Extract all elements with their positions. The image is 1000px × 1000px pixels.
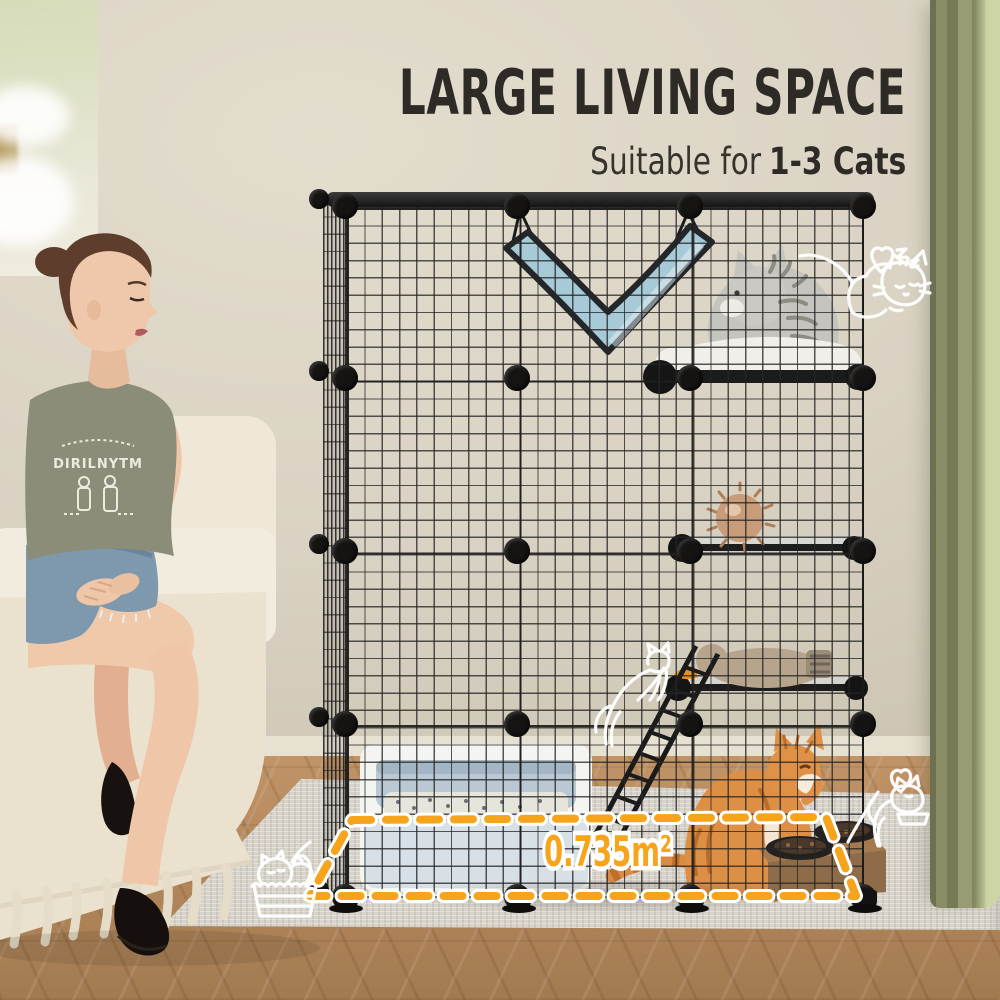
jumping-cat-doodle	[596, 643, 670, 746]
subtitle-bold: 1-3 Cats	[769, 140, 906, 183]
sleeping-cat-doodle	[800, 248, 930, 317]
page-title: LARGE LIVING SPACE	[399, 62, 906, 124]
floor-area-label: 0.735m²	[544, 827, 672, 876]
subtitle-light: Suitable for	[590, 140, 761, 183]
eating-cat-doodle	[848, 770, 928, 846]
product-scene: DIRILNYTM	[0, 0, 1000, 1000]
subtitle: Suitable for1-3 Cats	[309, 140, 906, 183]
headline-block: LARGE LIVING SPACE Suitable for1-3 Cats	[160, 62, 906, 183]
cats-in-basket-doodle	[252, 842, 316, 916]
